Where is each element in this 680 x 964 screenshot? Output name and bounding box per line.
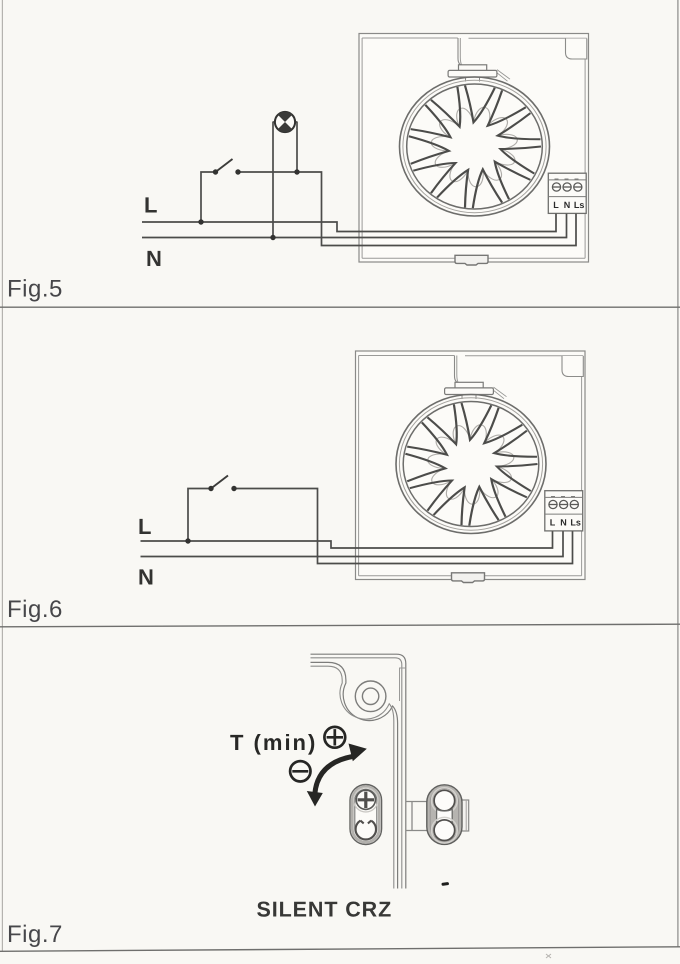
svg-text:Fig.5: Fig.5 <box>7 276 63 303</box>
svg-text:N: N <box>564 200 571 210</box>
svg-text:N: N <box>138 565 154 590</box>
svg-text:Fig.7: Fig.7 <box>7 921 63 948</box>
svg-text:Fig.6: Fig.6 <box>7 596 63 623</box>
svg-text:L: L <box>550 518 556 528</box>
svg-text:Ls: Ls <box>570 518 581 528</box>
svg-text:L: L <box>144 193 157 218</box>
svg-text:T (min): T (min) <box>230 730 317 755</box>
svg-text:L: L <box>553 200 559 210</box>
svg-text:N: N <box>146 246 162 271</box>
svg-text:L: L <box>138 514 151 539</box>
svg-text:Ls: Ls <box>574 200 585 210</box>
svg-text:N: N <box>560 518 567 528</box>
svg-text:SILENT CRZ: SILENT CRZ <box>257 898 393 922</box>
